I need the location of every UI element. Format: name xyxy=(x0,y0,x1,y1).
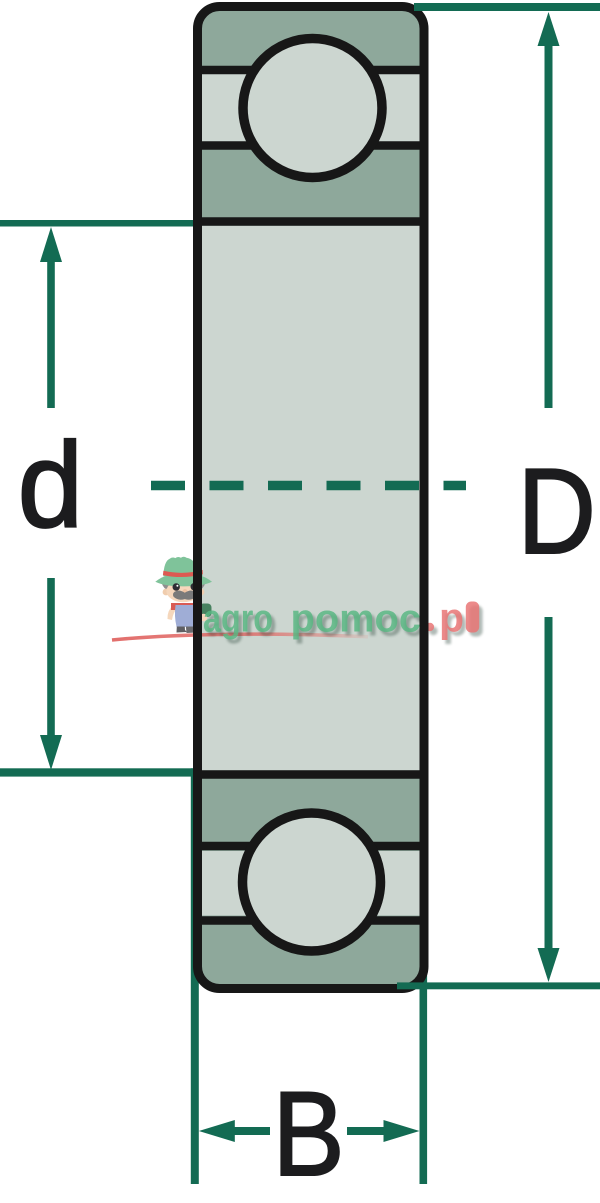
svg-text:agro: agro xyxy=(203,598,273,641)
svg-text:d: d xyxy=(18,418,83,553)
svg-text:pomoc: pomoc xyxy=(291,598,422,641)
svg-text:B: B xyxy=(273,1068,345,1201)
svg-text:D: D xyxy=(518,443,596,579)
svg-text:p: p xyxy=(439,595,464,641)
